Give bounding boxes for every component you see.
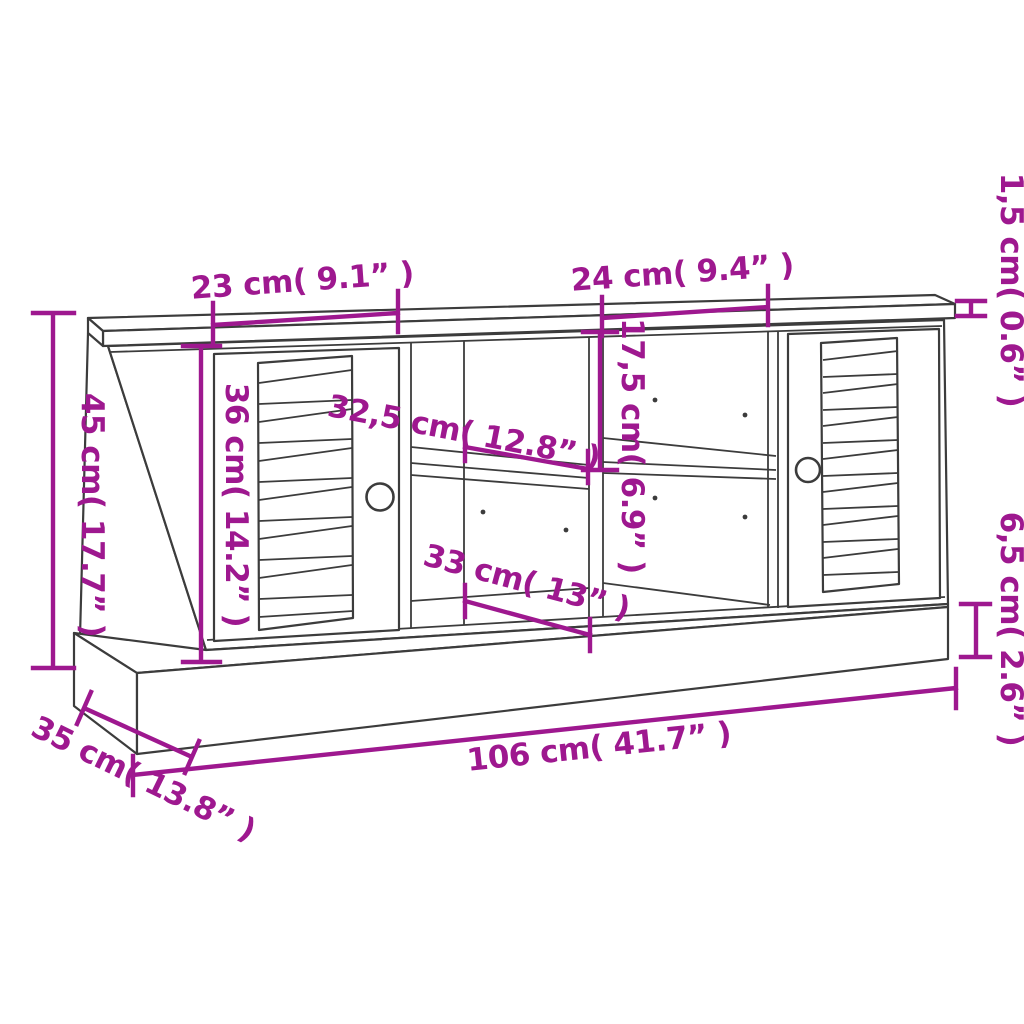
dimension-label: 36 cm( 14.2” ) — [218, 383, 254, 627]
diagram-canvas: 23 cm( 9.1” ) 24 cm( 9.4” ) 1,5 cm( 0.6”… — [0, 0, 1024, 1024]
cabinet-drawing — [74, 295, 955, 754]
dimension-label: 45 cm( 17.7” ) — [74, 393, 110, 637]
dimension-plinth-height: 6,5 cm( 2.6” ) — [961, 512, 1024, 747]
dimension-label: 6,5 cm( 2.6” ) — [993, 512, 1024, 747]
pin-hole — [743, 413, 748, 418]
dimension-diagram: 23 cm( 9.1” ) 24 cm( 9.4” ) 1,5 cm( 0.6”… — [0, 0, 1024, 1024]
dimension-top-panel-thickness: 1,5 cm( 0.6” ) — [957, 173, 1024, 408]
pin-hole — [481, 510, 486, 515]
pin-hole — [564, 528, 569, 533]
pin-hole — [653, 398, 658, 403]
pin-hole — [743, 515, 748, 520]
pin-hole — [653, 496, 658, 501]
left-door-knob — [367, 484, 394, 511]
dimension-label: 23 cm( 9.1” ) — [190, 255, 415, 306]
dimension-label: 1,5 cm( 0.6” ) — [993, 173, 1024, 408]
dimension-label: 24 cm( 9.4” ) — [570, 247, 795, 298]
dimension-line — [961, 604, 990, 657]
dimension-line — [33, 313, 74, 668]
dimension-label: 17,5 cm( 6.9” ) — [614, 318, 650, 574]
right-louvre-door — [788, 329, 940, 607]
dimension-line — [957, 301, 985, 316]
right-door-knob — [796, 458, 820, 482]
